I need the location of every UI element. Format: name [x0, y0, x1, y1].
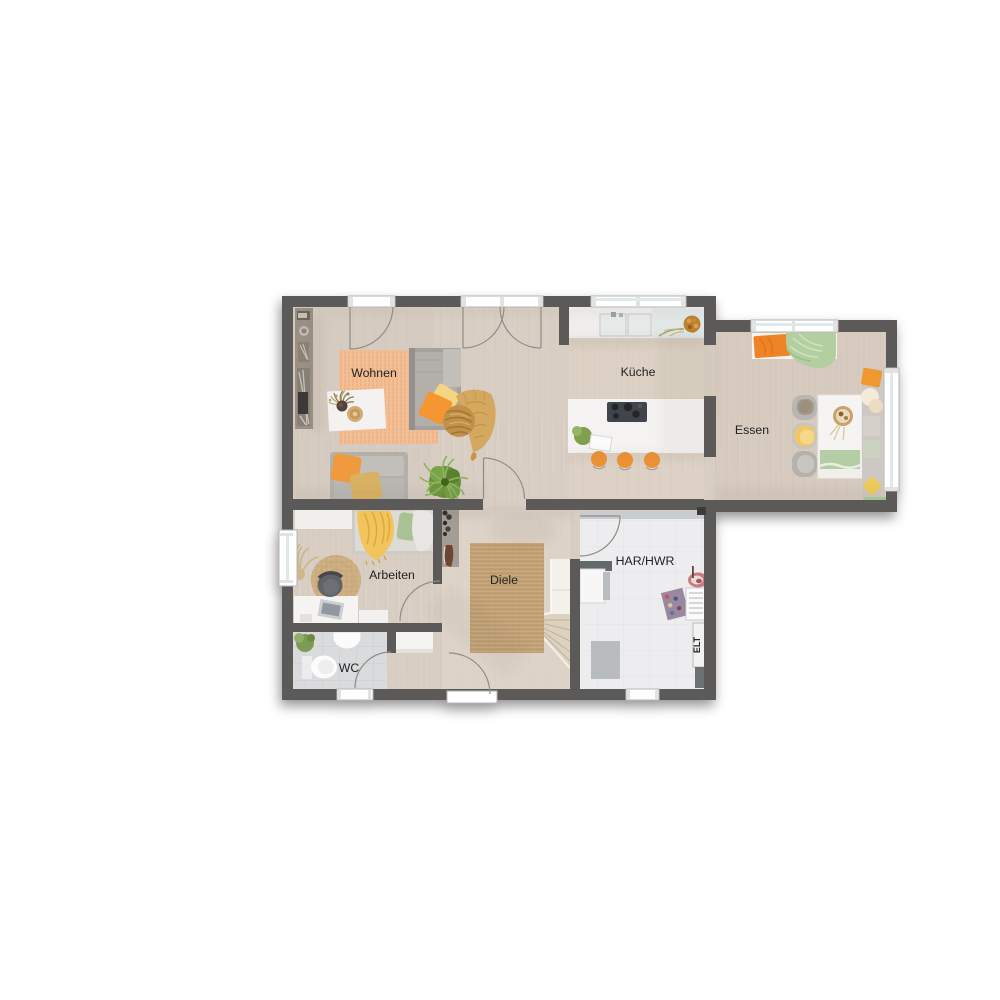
- svg-text:Wohnen: Wohnen: [351, 366, 397, 380]
- svg-text:ELT: ELT: [692, 636, 702, 653]
- svg-text:Essen: Essen: [735, 423, 769, 437]
- svg-text:WC: WC: [339, 661, 360, 675]
- svg-text:Arbeiten: Arbeiten: [369, 568, 415, 582]
- svg-text:Diele: Diele: [490, 573, 518, 587]
- svg-text:Küche: Küche: [621, 365, 656, 379]
- svg-text:HAR/HWR: HAR/HWR: [616, 554, 675, 568]
